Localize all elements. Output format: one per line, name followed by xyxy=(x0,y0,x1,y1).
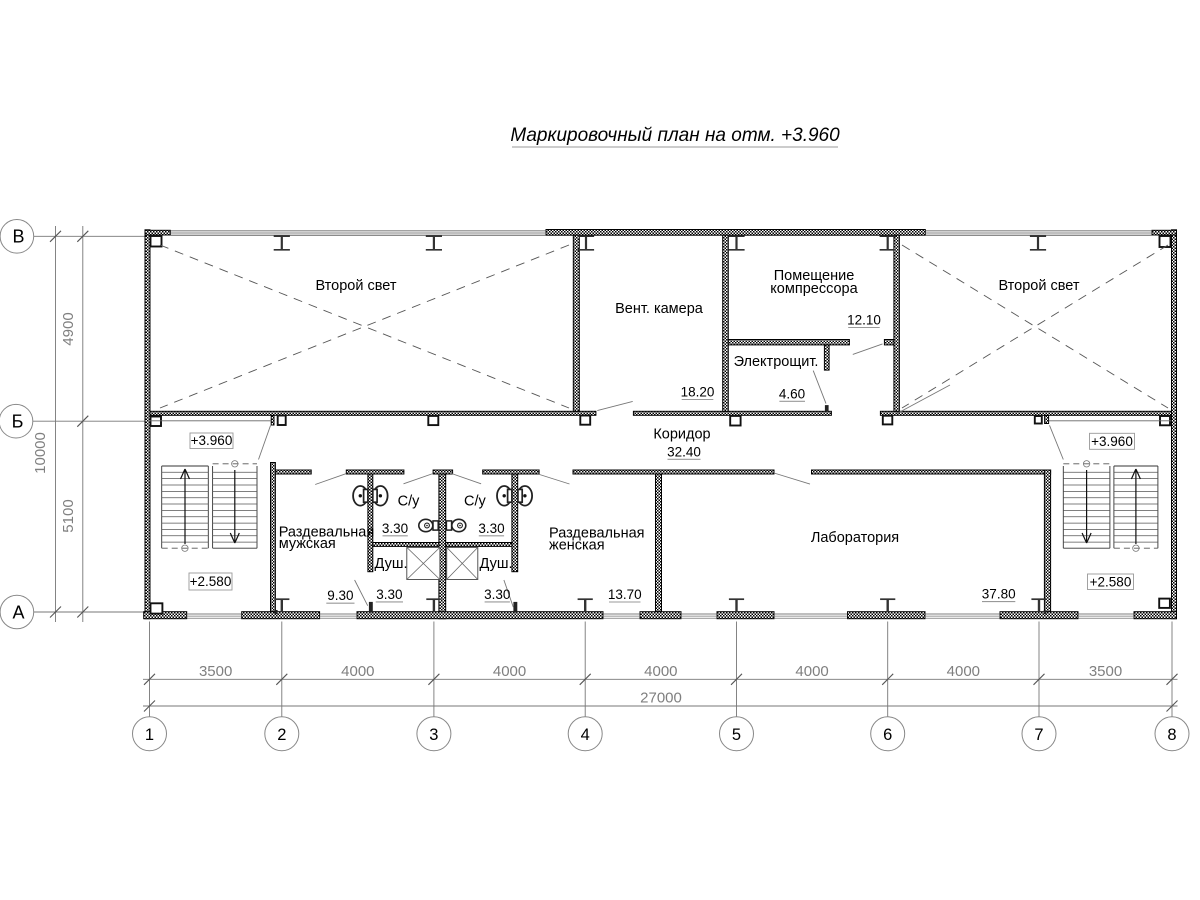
svg-text:2: 2 xyxy=(277,726,286,744)
svg-text:мужская: мужская xyxy=(279,536,336,552)
svg-text:4000: 4000 xyxy=(795,663,828,680)
svg-text:С/у: С/у xyxy=(398,494,421,510)
svg-text:4000: 4000 xyxy=(644,663,677,680)
svg-text:В: В xyxy=(12,227,24,247)
svg-text:4000: 4000 xyxy=(947,663,980,680)
svg-text:8: 8 xyxy=(1167,726,1176,744)
svg-text:+2.580: +2.580 xyxy=(1090,574,1132,589)
svg-text:+2.580: +2.580 xyxy=(190,574,232,589)
svg-text:3500: 3500 xyxy=(199,663,232,680)
svg-text:+3.960: +3.960 xyxy=(191,433,233,448)
svg-text:женская: женская xyxy=(549,538,605,554)
svg-text:Второй свет: Второй свет xyxy=(315,278,396,294)
svg-text:С/у: С/у xyxy=(464,494,487,510)
svg-text:27000: 27000 xyxy=(640,690,682,707)
svg-text:Вент. камера: Вент. камера xyxy=(615,301,704,317)
svg-text:3.30: 3.30 xyxy=(478,521,504,536)
svg-text:5100: 5100 xyxy=(60,499,77,532)
svg-text:Коридор: Коридор xyxy=(653,427,710,443)
svg-text:12.10: 12.10 xyxy=(847,313,881,328)
svg-text:10000: 10000 xyxy=(32,432,49,474)
svg-text:4.60: 4.60 xyxy=(779,386,805,401)
svg-text:3.30: 3.30 xyxy=(382,521,408,536)
svg-text:Лаборатория: Лаборатория xyxy=(811,530,899,546)
svg-text:32.40: 32.40 xyxy=(667,444,701,459)
svg-text:Маркировочный план на отм. +3.: Маркировочный план на отм. +3.960 xyxy=(510,125,840,146)
svg-text:4: 4 xyxy=(581,726,590,744)
svg-text:Электрощит.: Электрощит. xyxy=(734,354,819,370)
svg-text:3: 3 xyxy=(429,726,438,744)
svg-text:3.30: 3.30 xyxy=(376,587,402,602)
svg-text:13.70: 13.70 xyxy=(608,587,642,602)
svg-text:18.20: 18.20 xyxy=(681,385,715,400)
svg-text:3500: 3500 xyxy=(1089,663,1122,680)
svg-text:компрессора: компрессора xyxy=(770,281,858,297)
svg-text:3.30: 3.30 xyxy=(484,587,510,602)
svg-text:Душ.: Душ. xyxy=(479,556,512,572)
svg-text:Второй свет: Второй свет xyxy=(998,278,1079,294)
svg-text:1: 1 xyxy=(145,726,154,744)
svg-text:+3.960: +3.960 xyxy=(1091,434,1133,449)
svg-text:7: 7 xyxy=(1034,726,1043,744)
svg-text:5: 5 xyxy=(732,726,741,744)
svg-text:9.30: 9.30 xyxy=(327,588,353,603)
svg-text:4900: 4900 xyxy=(60,312,77,345)
svg-text:37.80: 37.80 xyxy=(982,587,1016,602)
svg-text:Душ.: Душ. xyxy=(374,556,407,572)
svg-text:6: 6 xyxy=(883,726,892,744)
svg-text:4000: 4000 xyxy=(493,663,526,680)
svg-text:А: А xyxy=(12,602,24,622)
svg-text:4000: 4000 xyxy=(341,663,374,680)
svg-text:Б: Б xyxy=(12,412,24,432)
